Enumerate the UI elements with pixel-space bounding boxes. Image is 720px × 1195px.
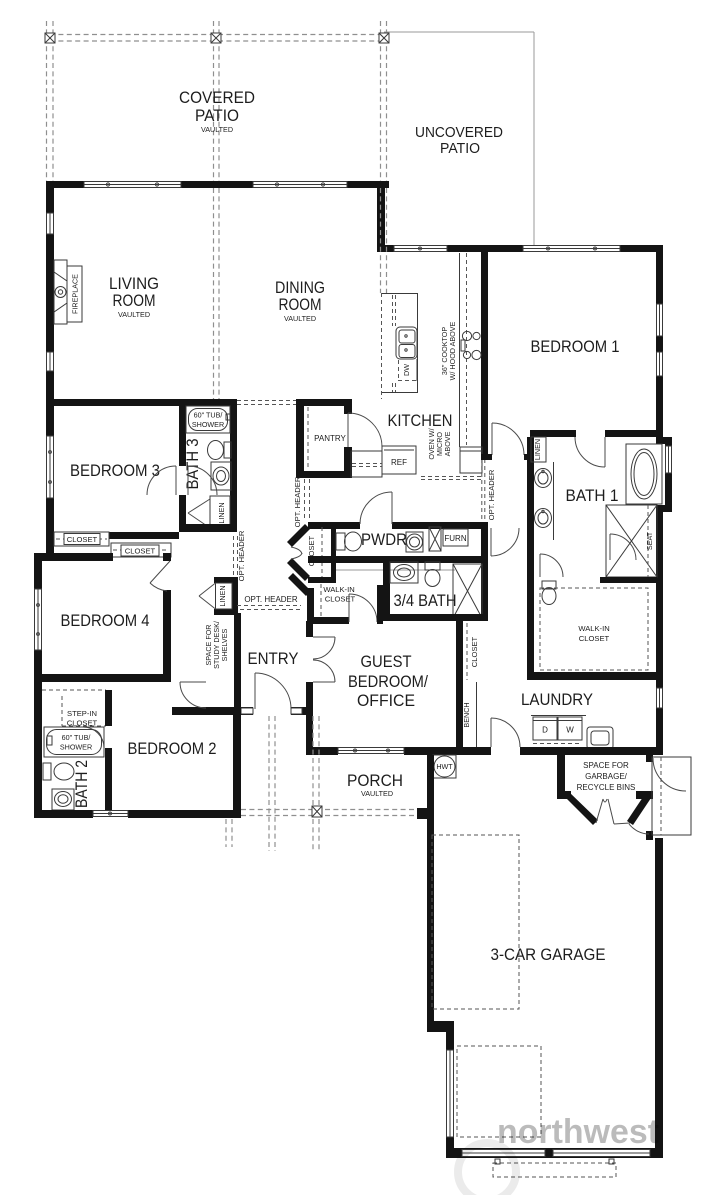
svg-text:BATH 2: BATH 2: [72, 760, 91, 808]
svg-text:LINEN: LINEN: [533, 439, 542, 460]
svg-text:VAULTED: VAULTED: [201, 125, 233, 134]
svg-text:HWT: HWT: [436, 762, 453, 771]
svg-text:PANTRY: PANTRY: [314, 434, 346, 443]
svg-text:WALK-IN: WALK-IN: [323, 585, 354, 594]
svg-text:W: W: [566, 726, 574, 735]
svg-text:BEDROOM 1: BEDROOM 1: [531, 337, 620, 356]
svg-text:DW: DW: [402, 364, 411, 376]
svg-text:CLOSET: CLOSET: [67, 535, 98, 544]
svg-text:OPT. HEADER: OPT. HEADER: [293, 476, 302, 527]
svg-text:FIREPLACE: FIREPLACE: [71, 274, 80, 314]
svg-text:STEP-IN: STEP-IN: [67, 709, 97, 718]
svg-text:northwest: northwest: [497, 1113, 659, 1151]
svg-text:D: D: [542, 726, 548, 735]
svg-text:BEDROOM 4: BEDROOM 4: [61, 611, 150, 630]
svg-text:3/4 BATH: 3/4 BATH: [394, 591, 457, 610]
svg-text:OPT. HEADER: OPT. HEADER: [244, 595, 298, 604]
svg-text:SPACE FOR: SPACE FOR: [583, 761, 629, 770]
svg-text:BATH 3: BATH 3: [183, 439, 202, 490]
svg-text:W/ HOOD ABOVE: W/ HOOD ABOVE: [448, 321, 457, 380]
svg-text:VAULTED: VAULTED: [118, 310, 150, 319]
svg-text:BEDROOM/: BEDROOM/: [348, 672, 428, 691]
svg-text:ROOM: ROOM: [279, 295, 322, 314]
svg-text:LINEN: LINEN: [217, 502, 226, 523]
svg-text:LAUNDRY: LAUNDRY: [521, 690, 593, 709]
svg-text:WALK-IN: WALK-IN: [578, 624, 609, 633]
svg-text:SHOWER: SHOWER: [192, 420, 224, 429]
svg-text:RECYCLE BINS: RECYCLE BINS: [577, 783, 636, 792]
svg-text:OPT. HEADER: OPT. HEADER: [237, 530, 246, 581]
svg-text:OFFICE: OFFICE: [357, 691, 415, 710]
svg-text:UNCOVERED: UNCOVERED: [415, 124, 503, 141]
svg-text:SHELVES: SHELVES: [220, 628, 229, 661]
svg-text:VAULTED: VAULTED: [361, 789, 393, 798]
svg-text:CLOSET: CLOSET: [579, 634, 610, 643]
svg-text:CLOSET: CLOSET: [125, 547, 156, 556]
svg-text:PORCH: PORCH: [347, 771, 403, 790]
svg-text:BEDROOM 3: BEDROOM 3: [70, 461, 160, 480]
svg-text:60" TUB/: 60" TUB/: [194, 411, 223, 420]
svg-text:CLOSET: CLOSET: [470, 636, 479, 667]
svg-text:ENTRY: ENTRY: [248, 649, 299, 668]
svg-text:BEDROOM 2: BEDROOM 2: [128, 739, 217, 758]
svg-text:VAULTED: VAULTED: [284, 314, 316, 323]
svg-text:OPT. HEADER: OPT. HEADER: [487, 469, 496, 520]
svg-text:ABOVE: ABOVE: [443, 431, 452, 456]
svg-text:SHOWER: SHOWER: [60, 743, 92, 752]
svg-text:60" TUB/: 60" TUB/: [62, 733, 91, 742]
svg-text:BENCH: BENCH: [462, 702, 471, 727]
svg-text:3-CAR GARAGE: 3-CAR GARAGE: [491, 945, 606, 964]
svg-text:GARBAGE/: GARBAGE/: [585, 772, 628, 781]
svg-text:LINEN: LINEN: [218, 585, 227, 606]
svg-text:BATH 1: BATH 1: [566, 486, 619, 505]
svg-text:CLOSET: CLOSET: [67, 719, 98, 728]
svg-text:ROOM: ROOM: [113, 291, 156, 310]
svg-text:PWDR: PWDR: [361, 530, 407, 549]
svg-text:COVERED: COVERED: [179, 88, 255, 107]
svg-text:PATIO: PATIO: [440, 140, 480, 157]
svg-text:SEAT: SEAT: [645, 531, 654, 550]
svg-text:GUEST: GUEST: [361, 652, 412, 671]
svg-text:PATIO: PATIO: [195, 106, 239, 125]
svg-text:KITCHEN: KITCHEN: [388, 411, 453, 430]
svg-text:FURN: FURN: [444, 534, 466, 543]
svg-text:REF: REF: [391, 458, 407, 467]
svg-text:CLOSET: CLOSET: [325, 595, 356, 604]
